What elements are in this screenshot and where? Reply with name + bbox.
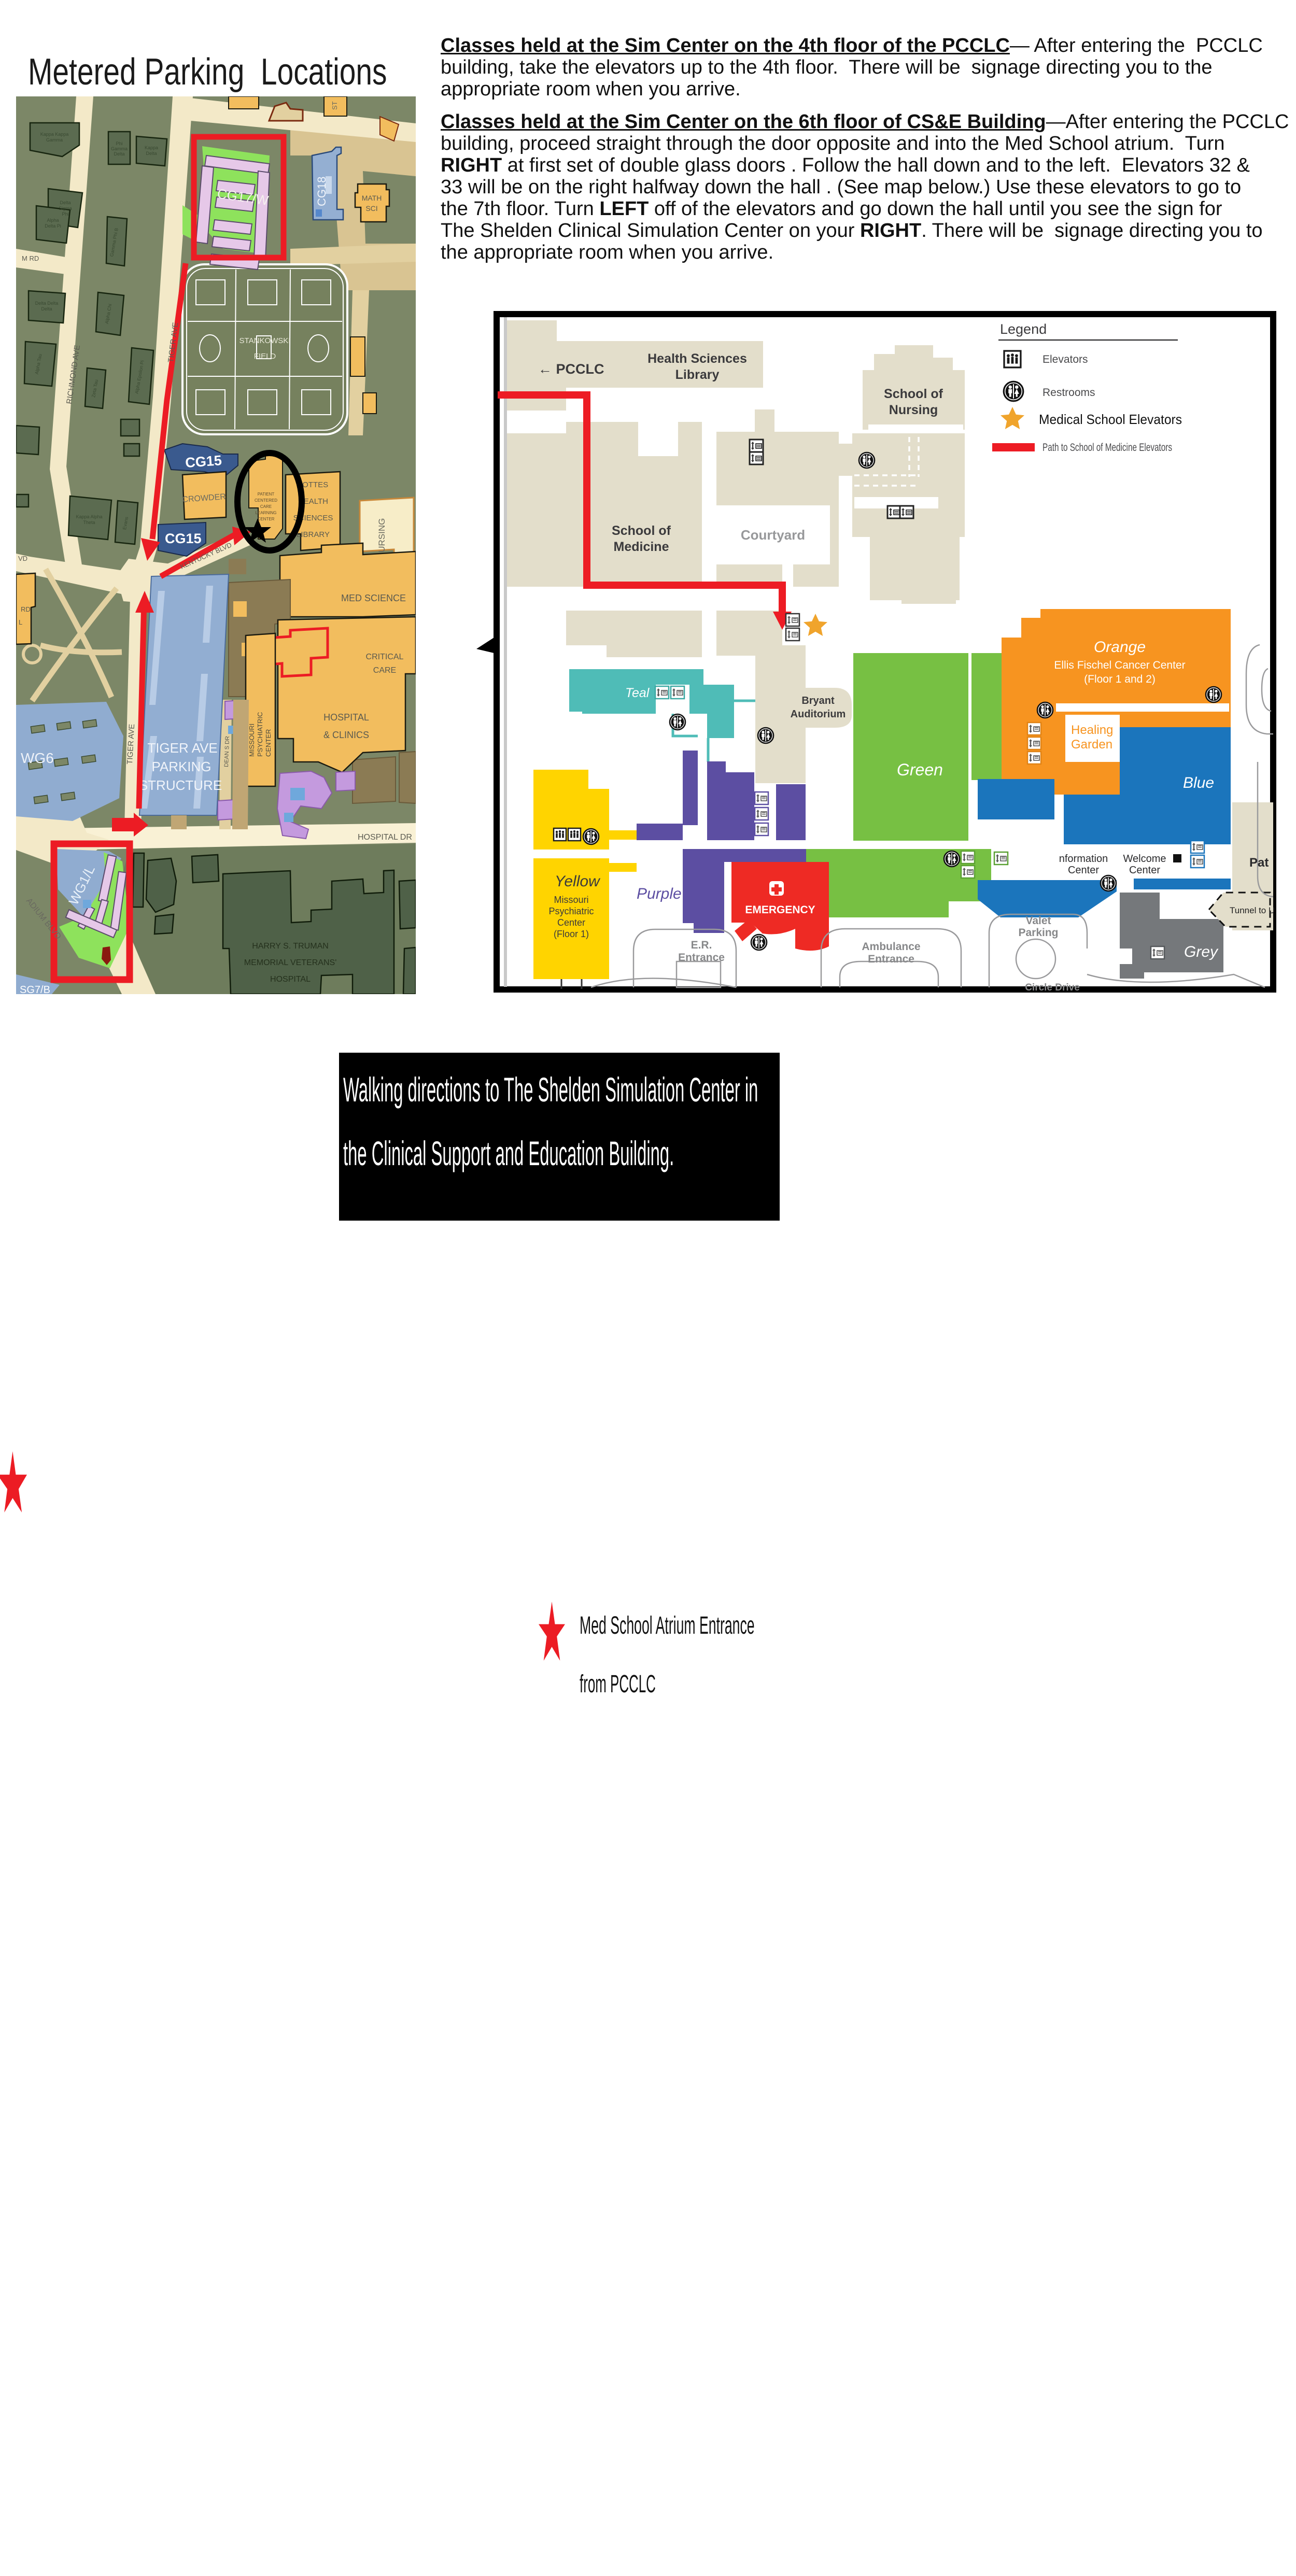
svg-text:CARE: CARE [260, 504, 272, 509]
svg-text:Entrance: Entrance [868, 953, 914, 965]
svg-text:Missouri: Missouri [554, 895, 588, 905]
svg-text:Nursing: Nursing [889, 403, 938, 417]
svg-text:CG15: CG15 [165, 531, 202, 546]
svg-text:Delta: Delta [41, 306, 52, 312]
svg-text:STANKOWSKI: STANKOWSKI [240, 336, 291, 345]
svg-text:CENTER: CENTER [258, 517, 275, 521]
svg-text:Gamma: Gamma [46, 137, 63, 143]
svg-text:M RD: M RD [22, 254, 39, 262]
svg-text:Entrance: Entrance [678, 952, 725, 964]
svg-text:VD: VD [18, 555, 27, 562]
svg-text:Center: Center [1068, 865, 1099, 876]
svg-text:WG6: WG6 [21, 750, 54, 766]
svg-text:CG15: CG15 [185, 452, 222, 471]
svg-text:Health Sciences: Health Sciences [647, 351, 747, 366]
svg-text:CENTER: CENTER [264, 729, 272, 757]
svg-text:Center: Center [557, 917, 585, 928]
svg-text:Ellis Fischel Cancer Center: Ellis Fischel Cancer Center [1054, 659, 1185, 671]
svg-text:CG18: CG18 [315, 177, 328, 206]
svg-text:Healing: Healing [1071, 723, 1113, 737]
svg-text:Tunnel to U: Tunnel to U [1230, 905, 1275, 915]
svg-text:Delta Delta: Delta Delta [35, 301, 59, 306]
svg-text:Purple: Purple [637, 885, 682, 902]
svg-text:CARE: CARE [373, 666, 396, 675]
svg-text:nformation: nformation [1059, 853, 1108, 865]
svg-text:L: L [19, 618, 22, 626]
svg-text:Theta: Theta [83, 520, 95, 525]
svg-text:Valet: Valet [1025, 915, 1051, 927]
svg-text:LIBRARY: LIBRARY [297, 530, 330, 539]
svg-text:Kappa: Kappa [145, 145, 158, 150]
svg-text:HOSPITAL: HOSPITAL [323, 712, 369, 723]
svg-text:FIELD: FIELD [254, 352, 276, 361]
svg-text:EMERGENCY: EMERGENCY [745, 904, 815, 916]
svg-text:Teal: Teal [625, 686, 650, 700]
svg-text:Garden: Garden [1071, 738, 1112, 752]
svg-text:PARKING: PARKING [151, 759, 211, 774]
svg-text:MISSOURI: MISSOURI [248, 724, 256, 757]
svg-text:Auditorium: Auditorium [791, 709, 846, 720]
svg-text:Parking: Parking [1018, 927, 1058, 939]
svg-text:Sigma: Sigma [59, 206, 72, 211]
svg-text:MED SCIENCE: MED SCIENCE [341, 593, 406, 603]
svg-text:Grey: Grey [1184, 943, 1219, 960]
svg-text:Alpha: Alpha [47, 218, 59, 223]
svg-text:Delta: Delta [60, 200, 71, 205]
svg-text:Delta Pi: Delta Pi [45, 223, 61, 229]
svg-text:SCI: SCI [365, 204, 377, 213]
svg-text:Kappa Kappa: Kappa Kappa [40, 132, 69, 137]
svg-text:Ambulance: Ambulance [862, 941, 920, 953]
svg-text:Elevators: Elevators [1043, 353, 1088, 365]
svg-text:PSYCHIATRIC: PSYCHIATRIC [256, 712, 264, 757]
svg-text:ST: ST [331, 101, 339, 110]
svg-text:Delta: Delta [146, 151, 157, 156]
svg-text:HARRY S. TRUMAN: HARRY S. TRUMAN [252, 942, 329, 951]
svg-text:(Floor 1 and 2): (Floor 1 and 2) [1084, 673, 1156, 685]
svg-text:Bryant: Bryant [801, 695, 835, 706]
svg-text:Orange: Orange [1094, 639, 1146, 656]
svg-text:Green: Green [897, 760, 943, 779]
svg-text:MATH: MATH [362, 194, 382, 202]
svg-text:TIGER AVE: TIGER AVE [147, 740, 217, 756]
svg-text:RD: RD [21, 605, 31, 613]
svg-text:School of: School of [884, 387, 943, 401]
svg-text:Phi: Phi [62, 211, 68, 217]
svg-text:Welcome: Welcome [1123, 853, 1166, 865]
svg-text:Phi: Phi [116, 141, 122, 146]
svg-text:School of: School of [612, 523, 671, 538]
svg-text:HOSPITAL DR: HOSPITAL DR [358, 833, 412, 842]
svg-text:STRUCTURE: STRUCTURE [139, 777, 222, 793]
svg-text:Blue: Blue [1183, 774, 1214, 791]
svg-text:Psychiatric: Psychiatric [548, 906, 594, 916]
svg-text:PATIENT: PATIENT [258, 492, 275, 497]
svg-text:Circle Drive: Circle Drive [1025, 982, 1080, 993]
svg-text:(Floor 1): (Floor 1) [554, 929, 589, 939]
svg-text:Medical School Elevators: Medical School Elevators [1039, 412, 1182, 427]
svg-text:Path to School of Medicine Ele: Path to School of Medicine Elevators [1043, 442, 1172, 454]
svg-text:MEMORIAL VETERANS': MEMORIAL VETERANS' [244, 958, 337, 967]
svg-text:Library: Library [675, 367, 720, 382]
svg-text:HOSPITAL: HOSPITAL [270, 975, 311, 984]
svg-text:Medicine: Medicine [614, 540, 669, 554]
svg-text:Kappa Alpha: Kappa Alpha [76, 514, 102, 519]
svg-text:Center: Center [1129, 865, 1160, 876]
svg-text:Delta: Delta [114, 151, 124, 157]
svg-text:CRITICAL: CRITICAL [366, 653, 404, 661]
svg-text:Courtyard: Courtyard [741, 527, 805, 543]
svg-text:Yellow: Yellow [555, 873, 601, 890]
svg-text:Pat: Pat [1249, 856, 1269, 870]
svg-text:CENTERED: CENTERED [255, 498, 277, 503]
svg-text:E.R.: E.R. [691, 939, 712, 951]
svg-text:Gamma: Gamma [111, 146, 128, 151]
svg-text:Restrooms: Restrooms [1043, 387, 1095, 399]
svg-text:DEAN S DR: DEAN S DR [223, 736, 231, 767]
svg-text:Legend: Legend [1000, 321, 1047, 337]
svg-text:LEARNING: LEARNING [256, 511, 277, 515]
svg-text:SG7/B: SG7/B [20, 984, 50, 994]
svg-text:← PCCLC: ← PCCLC [538, 361, 604, 377]
svg-text:& CLINICS: & CLINICS [323, 730, 369, 740]
